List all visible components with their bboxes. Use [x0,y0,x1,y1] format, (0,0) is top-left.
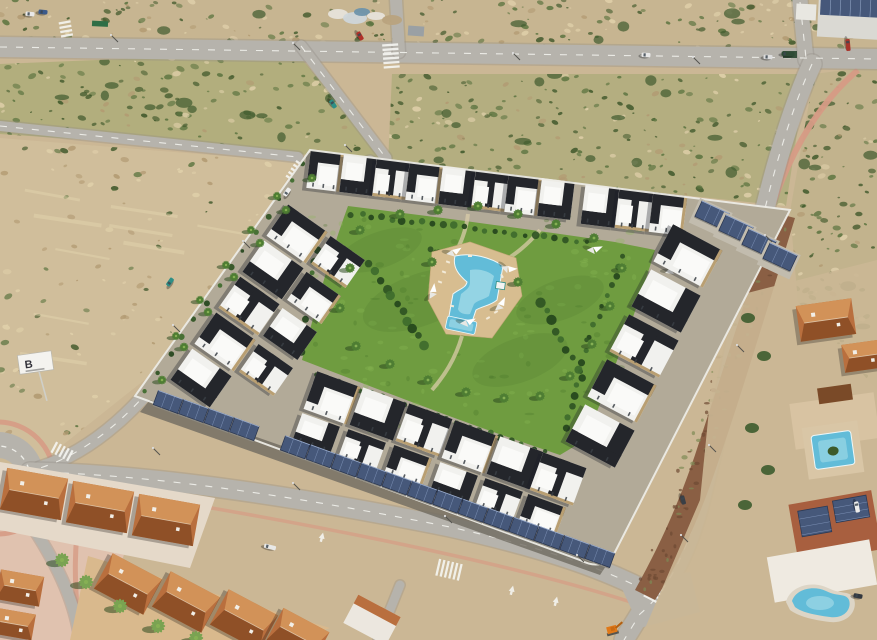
scrub-bush [187,106,196,113]
street-light-head [708,444,710,446]
hedge-bush [562,346,570,354]
hedge-bush [574,382,579,387]
lawn-mottle [527,330,535,332]
scrub-bush [594,36,604,44]
apartment-row-north [533,178,575,223]
palm-crown [569,375,572,378]
scrub-bush [726,167,738,178]
scrub-bush [585,155,595,162]
hedge-bush [609,282,615,288]
lawn-mottle [330,230,336,235]
hedge-bush [378,213,385,220]
chimney [853,350,858,355]
hedge-bush [557,336,564,343]
lawn-mottle [368,366,374,372]
hedge-bush [578,359,585,366]
scrub-bush [157,26,170,35]
villa-tree [745,423,759,433]
lawn-mottle [341,369,351,374]
dirt-tuft [689,468,693,470]
roof-terrace [444,174,463,193]
dirt-tuft [651,549,653,552]
scrub-bush [731,19,744,25]
scrub-bush [451,122,460,128]
hedge-bush [365,260,373,268]
street-light-head [692,56,694,58]
street-light-head [172,324,174,326]
scrub-bush [515,138,532,145]
lawn-mottle [545,389,549,392]
lawn-mottle [603,300,607,302]
scrub-tuft [155,318,161,321]
lawn-mottle [447,351,451,354]
lawn-mottle [365,225,371,230]
hedge-bush [613,273,620,280]
palm-crown [555,223,558,226]
palm-crown [194,636,198,640]
hedge-bush [429,221,435,227]
dirt-tuft [696,439,701,442]
hedge-bush [419,341,429,351]
chimney [86,494,91,499]
hedge-bush [310,270,315,275]
lawn-mottle [524,420,530,424]
pool-kiosk [495,281,505,289]
aerial-photo: B [0,0,877,640]
terracotta-roof [837,339,877,376]
scrub-bush [631,158,642,167]
hedge-bush [204,300,210,306]
chimney [44,501,48,505]
dirt-tuft [647,577,650,581]
lawn-mottle [451,239,458,244]
villa-pool-rect [802,420,865,479]
roof-terrace [516,190,537,211]
lawn-mottle [509,391,515,394]
scrub-bush [660,89,671,97]
palm-crown [359,229,362,232]
chimney [871,358,875,362]
scrub-bush [433,157,443,164]
hedge-bush [541,233,548,240]
scrub-bush [101,91,109,101]
lawn-mottle [400,271,404,277]
lawn-mottle [406,376,410,381]
palm-crown [199,299,201,301]
scrub-bush [534,77,544,86]
palm-crown [437,209,440,212]
dirt-tuft [687,451,691,453]
street-light-head [680,534,682,536]
hedge-bush [419,218,425,224]
lawn-mottle [632,274,636,280]
lawn-mottle [513,331,518,335]
scrub-bush [611,115,625,120]
chimney [837,323,841,327]
lawn-mottle [399,346,408,350]
street-light-head [444,515,446,517]
dirt-tuft [694,462,699,465]
dirt-tuft [673,544,676,548]
site-shed [408,25,425,36]
scrub-bush [55,95,69,101]
scrub-bush [645,75,656,85]
dirt-tuft [643,587,646,591]
chimney [110,514,114,518]
palm-crown [225,264,227,266]
hedge-bush [415,332,422,339]
palm-crown [517,281,520,284]
scrub-tuft [92,150,98,154]
scrub-tuft [192,193,200,198]
street-light-head [292,42,294,44]
palm-crown [183,346,186,349]
palm-crown [427,379,430,382]
car-body [781,51,794,56]
hedge-bush [552,328,560,336]
lawn-mottle [581,321,587,323]
scrub-bush [809,165,821,171]
kidney-pool-light [806,596,834,610]
palm-crown [609,305,612,308]
hedge-bush [569,403,576,410]
hedge-bush [546,315,556,325]
palm-crown [259,242,262,245]
palm-crown [233,276,236,279]
car-body [641,52,650,57]
scrub-bush [144,104,155,110]
roof-terrace [475,186,489,204]
scrub-bush [708,135,723,141]
car-glass [40,10,42,13]
hedge-bush [462,224,468,230]
dirt-tuft [666,527,668,530]
hedge-bush [241,249,245,253]
hedge-bush [409,220,414,225]
lawn-mottle [473,410,478,416]
scrub-tuft [839,202,847,207]
roof-terrace [345,162,364,181]
street-light-head [576,554,578,556]
palm-crown [311,177,314,180]
dirt-tuft [662,549,665,552]
hedge-bush [440,221,447,228]
hedge-bush [400,307,408,315]
hedge-bush [492,229,497,234]
palm-crown [431,261,434,264]
hedge-bush [551,235,558,242]
scrub-tuft [470,105,478,110]
palm-crown [517,213,520,216]
lawn-mottle [571,249,579,254]
lawn-mottle [590,270,597,275]
roof-terrace [543,186,562,205]
palm-crown [161,379,164,382]
scrub-bush [277,132,286,142]
lawn-mottle [602,249,608,252]
scrub-bush [105,82,119,89]
roof-terrace [586,193,605,213]
lawn-mottle [604,272,609,275]
palm-crown [276,195,278,197]
street-light-head [152,447,154,449]
palm-crown [207,311,210,314]
hedge-bush [605,293,610,298]
hedge-bush [266,214,272,220]
lawn-mottle [473,393,480,396]
hedge-bush [386,291,395,300]
hedge-bush [407,324,416,333]
lawn-mottle [362,378,367,381]
warehouse-annex [796,3,817,20]
dirt-tuft [704,402,710,404]
car-body [25,11,34,16]
hedge-bush [590,322,596,328]
hedge-bush [620,254,625,259]
street-light-head [110,34,112,36]
car-body [38,9,47,14]
dirt-tuft [689,487,694,489]
car-glass [643,53,645,56]
dirt-tuft [650,569,655,571]
car-glass [27,12,29,15]
dirt-tuft [676,469,680,473]
palm-crown [339,307,342,310]
palm-crown [591,343,594,346]
lawn-mottle [463,403,468,407]
dirt-tuft [701,418,704,421]
palm-crown [285,209,288,212]
palm-crown [503,397,506,400]
scrub-tuft [579,136,584,139]
palm-crown [349,267,352,270]
lawn-mottle [365,355,368,357]
lawn-mottle [377,341,383,345]
palm-crown [355,345,358,348]
hedge-bush [532,231,540,239]
lawn-mottle [340,356,347,360]
hedge-bush [564,414,570,420]
dirt-tuft [784,228,787,232]
chimney [20,481,25,486]
highway-sign [92,21,108,27]
dirt-tuft [681,455,687,459]
dirt-tuft [693,481,699,484]
palm-crown [465,391,468,394]
roof-terrace [318,166,339,187]
villa-tree [757,351,771,361]
scrub-bush [618,21,630,31]
sun-lounger [468,255,472,257]
hedge-bush [450,221,458,229]
dirt-tuft [659,570,664,573]
aerial-photo-stage: B [0,0,877,640]
hedge-bush [597,314,602,319]
hedge-bush [482,228,487,233]
scrub-tuft [92,395,98,399]
lawn-mottle [615,238,624,243]
hedge-bush [142,389,146,393]
villa-tree [761,465,775,475]
car-body [763,54,772,59]
scrub-bush [252,10,265,19]
hedge-bush [377,277,384,284]
lawn-mottle [339,221,343,226]
scrub-bush [239,111,255,120]
dirt-tuft [654,576,658,580]
street-light-head [242,240,244,242]
dirt-tuft [639,577,642,580]
palm-crown [539,395,542,398]
dirt-tuft [678,505,680,508]
hedge-bush [523,234,528,239]
lawn-mottle [525,413,535,415]
street-light-head [344,144,346,146]
lawn-mottle [562,369,567,373]
street-light-head [764,234,766,236]
hedge-bush [394,301,401,308]
dirt-tuft [648,574,652,577]
dirt-tuft [674,505,678,509]
terracotta-roof [792,298,857,345]
chimney [10,579,15,584]
villa-tree [741,313,755,323]
hedge-bush [290,178,294,182]
dirt-tuft [692,431,695,435]
palm-crown [593,237,596,240]
dirt-tuft [683,507,686,509]
dirt-tuft [679,489,682,491]
dirt-tuft [666,558,669,562]
palm-crown [118,604,122,608]
street-light-head [292,482,294,484]
palm-crown [389,363,392,366]
dirt-tuft [676,513,682,515]
hedge-bush [360,211,366,217]
car-glass [783,52,785,55]
rooftop-solar-panel [798,506,832,537]
scrub-tuft [855,212,862,216]
construction-materials [382,15,402,25]
hedge-bush [169,351,175,357]
dirt-tuft [768,274,773,276]
lawn-mottle [527,391,533,396]
hedge-bush [574,240,579,245]
lawn-mottle [313,342,318,347]
hedge-bush [371,267,379,275]
hedge-bush [535,298,545,308]
dirt-tuft [670,532,673,536]
roof-terrace [376,174,390,192]
lawn-mottle [516,323,525,325]
hedge-bush [544,308,550,314]
scrub-bush [720,31,729,37]
palm-crown [84,580,88,584]
dirt-tuft [679,467,684,469]
villa-tree [738,500,752,510]
dirt-tuft [705,411,708,415]
chimney [811,312,816,317]
lawn-mottle [626,256,631,260]
palm-crown [156,624,160,628]
lawn-mottle [308,215,316,218]
lawn-mottle [323,224,327,227]
street-light-head [512,52,514,54]
lawn-mottle [421,389,424,394]
scrub-bush [256,113,267,118]
hedge-bush [155,371,159,375]
hedge-bush [347,212,353,218]
hedge-bush [562,237,569,244]
chimney [176,527,180,531]
dirt-tuft [665,553,668,557]
lawn-mottle [385,381,390,386]
lawn-mottle [371,281,375,283]
dirt-tuft [756,280,761,283]
lawn-mottle [580,260,589,263]
lawn-mottle [353,321,356,326]
palm-crown [175,335,177,337]
chimney [5,616,10,621]
hedge-bush [428,246,434,252]
dirt-tuft [653,574,656,576]
hedge-bush [574,366,582,374]
palm-crown [621,267,624,270]
hedge-bush [570,355,576,361]
chimney [19,628,23,632]
palm-crown [399,213,402,216]
palm-crown [477,205,480,208]
lawn-mottle [560,390,566,393]
palm-crown [250,229,252,231]
lawn-mottle [429,369,438,374]
hedge-bush [218,283,223,288]
scrub-bush [798,159,810,170]
lawn-mottle [412,258,415,261]
scrub-tuft [830,83,833,85]
hedge-bush [472,226,477,231]
scrub-tuft [858,184,862,187]
car-glass [846,41,849,43]
roof-terrace [618,204,633,223]
chimney [26,593,30,597]
lawn-mottle [362,217,367,222]
hedge-bush [578,374,585,381]
street-light-head [736,344,738,346]
hedge-bush [511,231,518,238]
dirt-tuft [670,555,672,559]
scrub-bush [441,109,451,118]
roof-terrace [417,178,438,199]
lawn-mottle [594,332,601,337]
dirt-tuft [677,516,683,519]
scrub-bush [510,20,526,27]
hedge-bush [571,392,579,400]
car-glass [765,55,767,58]
scrub-tuft [285,124,293,129]
palm-crown [60,558,64,562]
dirt-tuft [701,433,705,437]
hedge-bush [368,215,374,221]
hedge-bush [502,230,507,235]
scrub-tuft [837,197,840,199]
chimney [152,507,157,512]
dirt-tuft [649,580,652,584]
scrub-bush [724,8,740,18]
